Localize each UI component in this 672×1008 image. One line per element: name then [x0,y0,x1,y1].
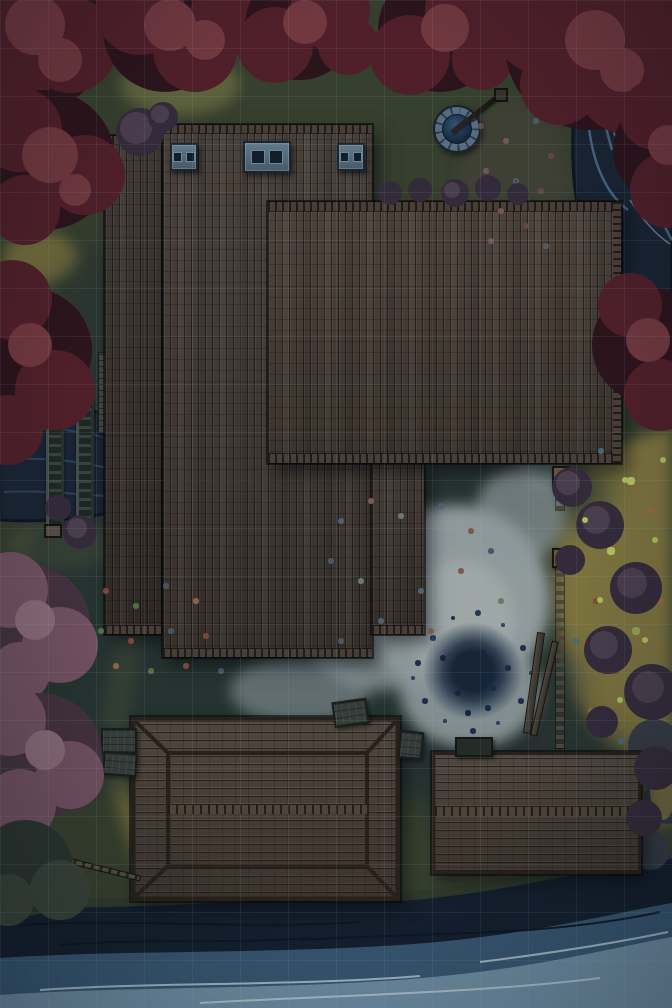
picket-fence-lower [556,552,564,748]
slipway-rail-west [46,400,64,528]
slipway-post [44,524,62,538]
barn-ridge [435,807,638,816]
leaf-fall [515,180,517,182]
slipway-post [44,394,62,408]
flue [251,150,265,164]
west-annex-roof [105,136,161,634]
hip-roof-barn [131,717,400,901]
main-hall-cap-top [163,125,372,133]
main-hall-cap-bottom [163,649,372,657]
courtyard-litter [400,560,402,562]
west-annex-cap-top [105,136,161,144]
west-path-litter [160,630,162,632]
flat-roof-barn [432,752,641,874]
well-beam-post [494,88,508,102]
meadow-leaves [610,590,612,592]
flue [353,152,362,162]
chimney-small-east [337,143,365,171]
wheel-hub [70,736,76,742]
barn-ridge [168,805,367,814]
cart-wheel [48,746,78,776]
store-annex-roof [372,463,424,634]
flue [340,152,349,162]
slipway-post [74,524,92,538]
fence-post [552,466,570,486]
battle-map [0,0,672,1008]
chimney-large-center [243,141,291,173]
flue [269,150,283,164]
west-annex-cap-bottom [105,626,161,634]
slipway-rail-east [76,400,94,528]
chimney-small-west [170,143,198,171]
wheel-hub [60,758,66,764]
east-wing-cap-top [268,202,621,211]
crate [102,751,138,777]
east-wing-roof [268,202,621,463]
east-wing-cap-right [613,202,621,463]
flue [186,152,195,162]
stain-debris [472,672,474,674]
crate [331,698,369,729]
hand-cart [455,737,493,757]
store-annex-cap-bottom [372,626,424,634]
slipway-post [74,394,92,408]
flue [173,152,182,162]
courtyard-stain [410,610,536,732]
fence-post [552,548,570,568]
crate [398,730,425,760]
east-wing-cap-bottom [268,454,621,463]
